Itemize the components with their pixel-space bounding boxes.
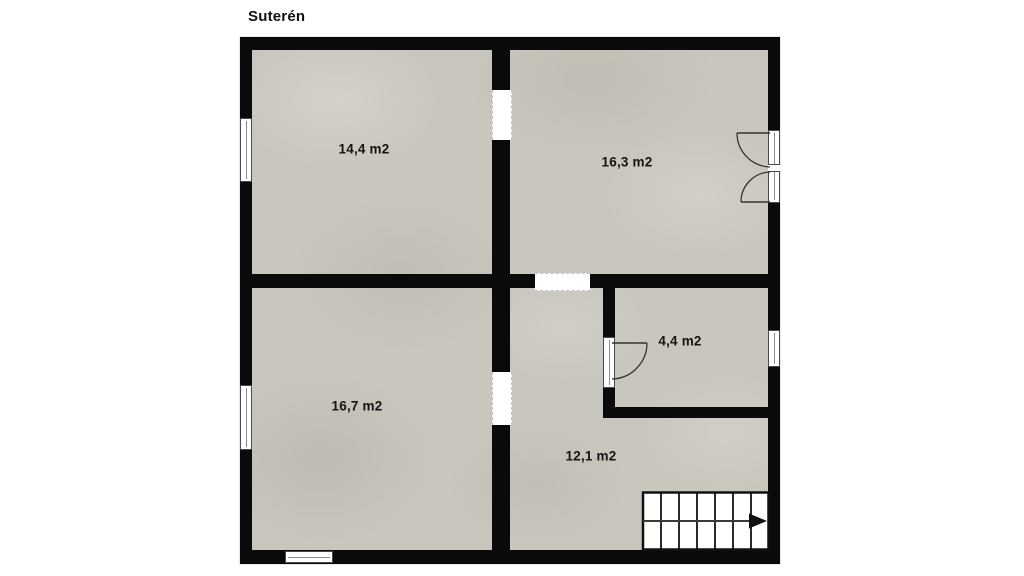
floor-plan: 14,4 m2 16,3 m2 16,7 m2 12,1 m2 4,4 m2: [240, 37, 780, 564]
room-label-small-room: 4,4 m2: [658, 334, 701, 349]
wall-middle-horizontal: [252, 274, 768, 288]
double-door-icon: [737, 133, 770, 202]
window-left-top: [240, 118, 252, 182]
wall-right: [768, 37, 780, 564]
window-bottom: [285, 551, 333, 563]
opening-middle-passage: [535, 273, 590, 291]
room-label-top-left: 14,4 m2: [339, 142, 390, 157]
wall-small-room-bottom: [603, 407, 768, 418]
small-room-door-frame: [603, 337, 615, 388]
opening-bottom-rooms-door: [492, 372, 512, 425]
room-label-bottom-left: 16,7 m2: [332, 399, 383, 414]
double-door-middle-tick: [768, 164, 780, 172]
room-label-top-right: 16,3 m2: [602, 155, 653, 170]
wall-left: [240, 37, 252, 564]
floor-plan-page: Suterén: [0, 0, 1024, 576]
page-title: Suterén: [248, 8, 305, 25]
stairs: [643, 493, 769, 550]
stairs-direction-arrow-icon: [749, 514, 767, 529]
wall-top: [240, 37, 780, 50]
room-label-bottom-right: 12,1 m2: [566, 449, 617, 464]
window-right-small-room: [768, 330, 780, 367]
window-left-bottom: [240, 385, 252, 450]
opening-top-rooms-door: [492, 90, 512, 140]
single-door-icon: [612, 343, 647, 379]
